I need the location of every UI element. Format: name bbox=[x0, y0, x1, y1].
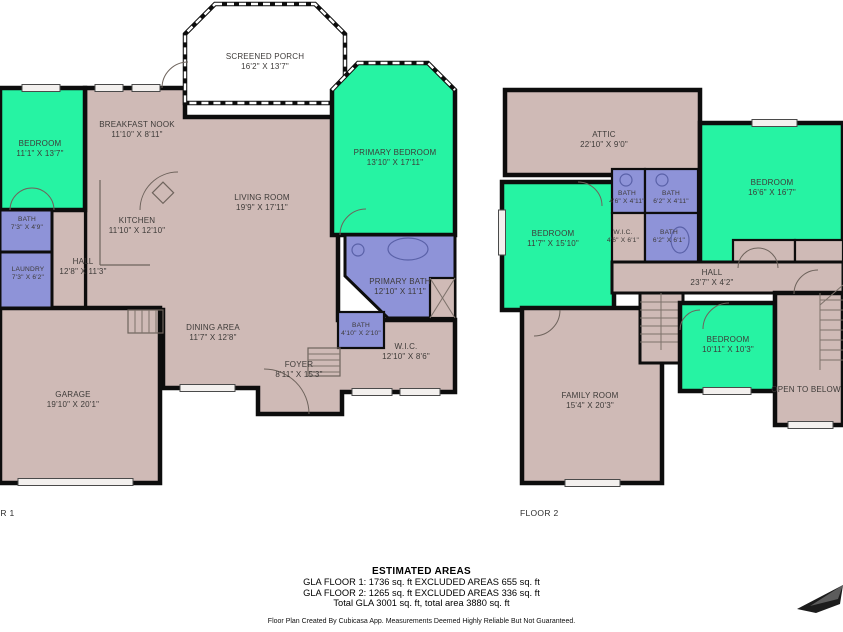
room-label-bath3: BATH 4'6" X 4'11" bbox=[609, 190, 645, 206]
window bbox=[788, 422, 833, 429]
window bbox=[132, 85, 160, 92]
floor1-shapes bbox=[0, 4, 455, 486]
room-label-bedroom4: BEDROOM 10'11" X 10'3" bbox=[702, 335, 754, 355]
room-label-hall2: HALL 23'7" X 4'2" bbox=[690, 268, 733, 288]
room-label-bedroom1: BEDROOM 11'1" X 13'7" bbox=[16, 139, 63, 159]
room-label-breakfast-nook: BREAKFAST NOOK 11'10" X 8'11" bbox=[99, 120, 175, 140]
room-label-dining-area: DINING AREA 11'7" X 12'8" bbox=[186, 323, 240, 343]
room-label-living-room: LIVING ROOM 19'9" X 17'11" bbox=[234, 193, 290, 213]
window bbox=[22, 85, 60, 92]
gla-floor1-line: GLA FLOOR 1: 1736 sq. ft EXCLUDED AREAS … bbox=[0, 577, 843, 588]
room-label-open-to-below: OPEN TO BELOW bbox=[771, 385, 840, 395]
window bbox=[95, 85, 123, 92]
window bbox=[352, 389, 392, 396]
room-label-bath1: BATH 7'3" X 4'9" bbox=[11, 216, 43, 232]
window bbox=[499, 210, 506, 255]
estimated-areas-block: ESTIMATED AREAS GLA FLOOR 1: 1736 sq. ft… bbox=[0, 566, 843, 625]
room-label-hall1: HALL 12'8" X 11'3" bbox=[59, 257, 106, 277]
room-label-bath4: BATH 6'2" X 4'11" bbox=[653, 190, 689, 206]
disclaimer-text: Floor Plan Created By Cubicasa App. Meas… bbox=[0, 618, 843, 625]
room-label-laundry: LAUNDRY 7'3" X 6'2" bbox=[12, 266, 45, 282]
room-label-wic1: W.I.C. 12'10" X 8'6" bbox=[382, 342, 430, 362]
room-label-kitchen: KITCHEN 11'10" X 12'10" bbox=[109, 216, 166, 236]
gla-floor2-line: GLA FLOOR 2: 1265 sq. ft EXCLUDED AREAS … bbox=[0, 588, 843, 599]
room-label-wic2: W.I.C. 4'6" X 6'1" bbox=[607, 229, 639, 245]
room-label-family-room: FAMILY ROOM 15'4" X 20'3" bbox=[561, 391, 618, 411]
room-label-bath2: BATH 4'10" X 2'10" bbox=[341, 322, 381, 338]
room-label-bedroom2: BEDROOM 11'7" X 15'10" bbox=[527, 229, 579, 249]
floor1-tag: FLOOR 1 bbox=[0, 508, 14, 518]
window bbox=[18, 479, 133, 486]
floorplan-drawing bbox=[0, 0, 843, 632]
floor2-tag: FLOOR 2 bbox=[520, 508, 558, 518]
room-label-garage: GARAGE 19'10" X 20'1" bbox=[47, 390, 99, 410]
window bbox=[180, 385, 235, 392]
window bbox=[565, 480, 620, 487]
floorplan-canvas: SCREENED PORCH 16'2" X 13'7" BEDROOM 11'… bbox=[0, 0, 843, 632]
room-label-primary-bedroom: PRIMARY BEDROOM 13'10" X 17'11" bbox=[354, 148, 437, 168]
room-label-bedroom3: BEDROOM 16'6" X 16'7" bbox=[748, 178, 796, 198]
room-label-primary-bath: PRIMARY BATH 12'10" X 11'1" bbox=[369, 277, 431, 297]
room-label-bath5: BATH 6'2" X 6'1" bbox=[653, 229, 685, 245]
room-label-screened-porch: SCREENED PORCH 16'2" X 13'7" bbox=[226, 52, 304, 72]
window bbox=[703, 388, 751, 395]
window bbox=[400, 389, 440, 396]
room-label-attic: ATTIC 22'10" X 9'0" bbox=[580, 130, 628, 150]
floor2-shapes bbox=[499, 90, 843, 487]
total-gla-line: Total GLA 3001 sq. ft, total area 3880 s… bbox=[0, 598, 843, 609]
room-label-foyer: FOYER 8'11" X 15'3" bbox=[275, 360, 322, 380]
stairs-floor2 bbox=[640, 293, 683, 363]
room-shape-open-to-below bbox=[775, 293, 843, 425]
estimated-areas-title: ESTIMATED AREAS bbox=[0, 566, 843, 577]
window bbox=[752, 120, 797, 127]
